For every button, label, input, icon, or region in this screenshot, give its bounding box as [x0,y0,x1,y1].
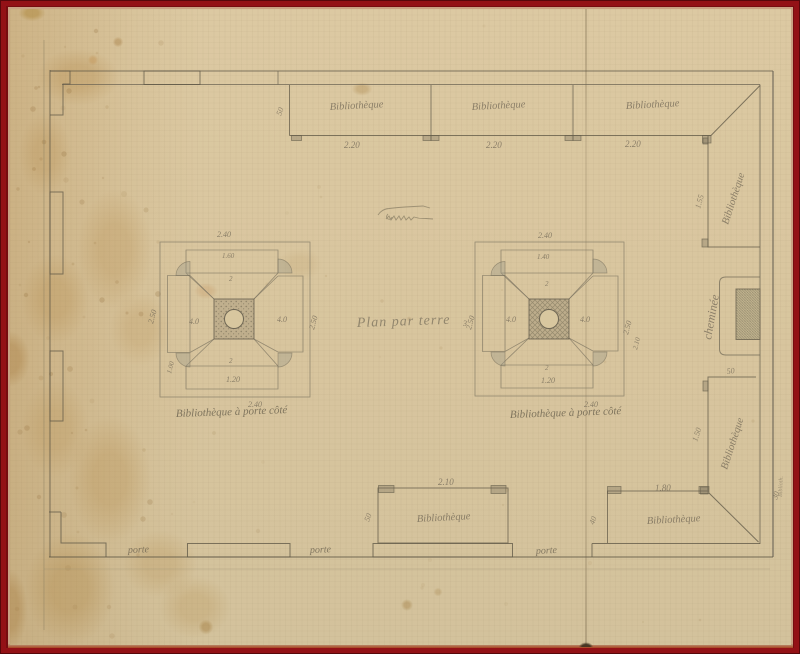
svg-text:porte: porte [535,545,558,557]
svg-text:4.0: 4.0 [189,317,199,326]
svg-text:2: 2 [229,275,233,283]
svg-text:2.50: 2.50 [146,309,158,325]
svg-text:2: 2 [545,280,549,288]
svg-text:2.40: 2.40 [217,230,231,239]
svg-text:4.0: 4.0 [277,315,287,324]
svg-text:cheminée: cheminée [700,293,722,341]
svg-text:Bibliothèque: Bibliothèque [647,513,701,527]
svg-text:2: 2 [229,357,233,365]
svg-text:1.60: 1.60 [222,252,235,260]
svg-text:porte: porte [127,544,150,556]
svg-text:40: 40 [587,515,598,526]
svg-text:2.20: 2.20 [344,140,360,150]
svg-text:Bibliothèque à porte côté: Bibliothèque à porte côté [510,405,623,421]
svg-text:1.55: 1.55 [693,194,706,210]
svg-text:2.40: 2.40 [538,231,552,240]
svg-text:3: 3 [462,319,467,328]
svg-text:2.20: 2.20 [486,140,502,150]
svg-text:Bibliothèque: Bibliothèque [626,98,680,112]
svg-text:50: 50 [274,106,285,117]
svg-text:2.50: 2.50 [307,315,319,331]
svg-text:Bibliothèque: Bibliothèque [417,511,471,525]
svg-text:Bibliothèque: Bibliothèque [329,99,383,113]
svg-text:2.10: 2.10 [438,477,454,487]
svg-text:50: 50 [726,366,735,376]
svg-text:2.20: 2.20 [625,139,641,149]
svg-text:porte: porte [309,544,332,556]
svg-text:1.00: 1.00 [165,360,176,374]
svg-text:2: 2 [545,364,549,372]
svg-text:1.20: 1.20 [226,375,240,384]
svg-text:2.10: 2.10 [631,336,642,350]
svg-text:1.50: 1.50 [690,427,703,443]
svg-text:Plan par terre: Plan par terre [356,313,451,331]
svg-text:2.40: 2.40 [248,400,262,409]
svg-text:Biblioth.: Biblioth. [778,476,785,497]
svg-text:1.80: 1.80 [655,483,671,493]
svg-text:Bibliothèque à porte côté: Bibliothèque à porte côté [176,404,289,420]
svg-text:2.50: 2.50 [621,320,633,336]
svg-text:4.0: 4.0 [580,315,590,324]
svg-text:1.20: 1.20 [541,376,555,385]
svg-text:50: 50 [362,512,373,523]
svg-text:1.40: 1.40 [537,253,550,261]
svg-text:Bibliothèque: Bibliothèque [471,99,525,113]
svg-text:Bibliothèque: Bibliothèque [720,171,747,226]
svg-text:Bibliothèque: Bibliothèque [719,416,746,471]
svg-text:2.40: 2.40 [584,400,598,409]
svg-text:4.0: 4.0 [506,315,516,324]
